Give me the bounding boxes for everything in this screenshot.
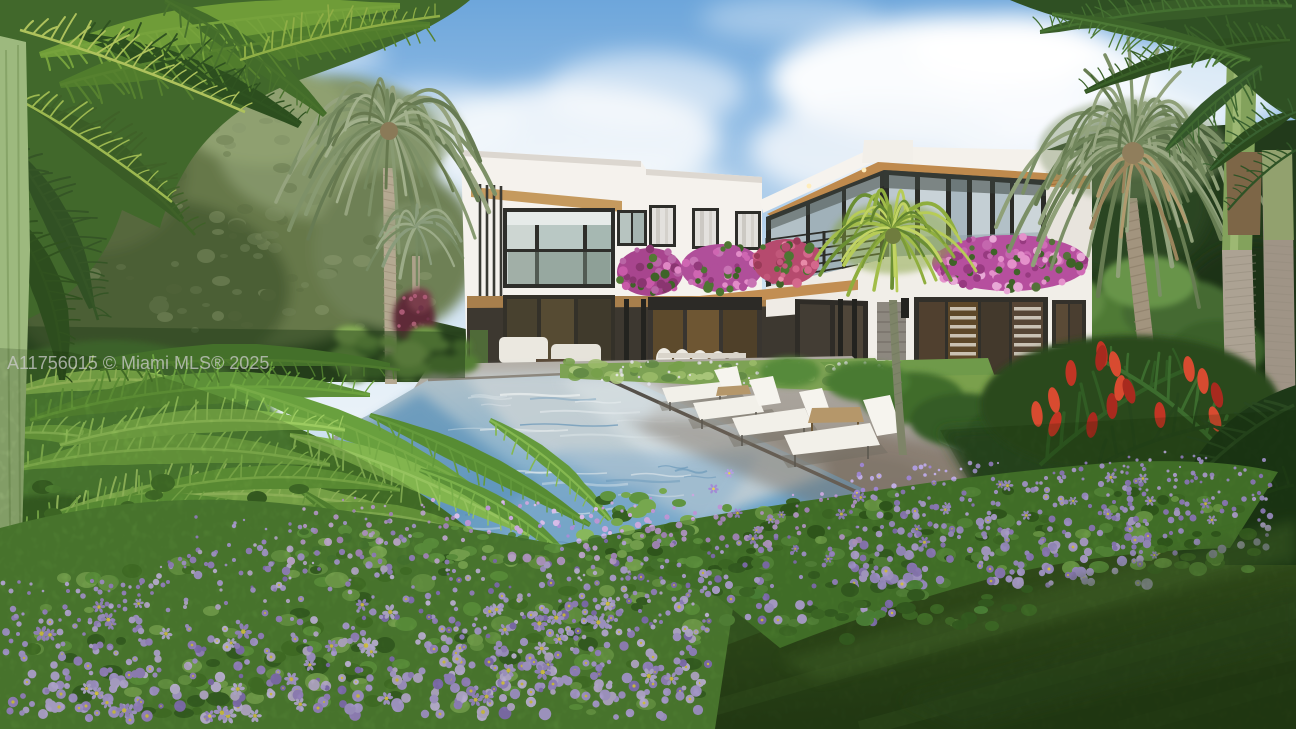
svg-text:A11756015 © Miami MLS® 2025: A11756015 © Miami MLS® 2025 [7, 353, 269, 373]
